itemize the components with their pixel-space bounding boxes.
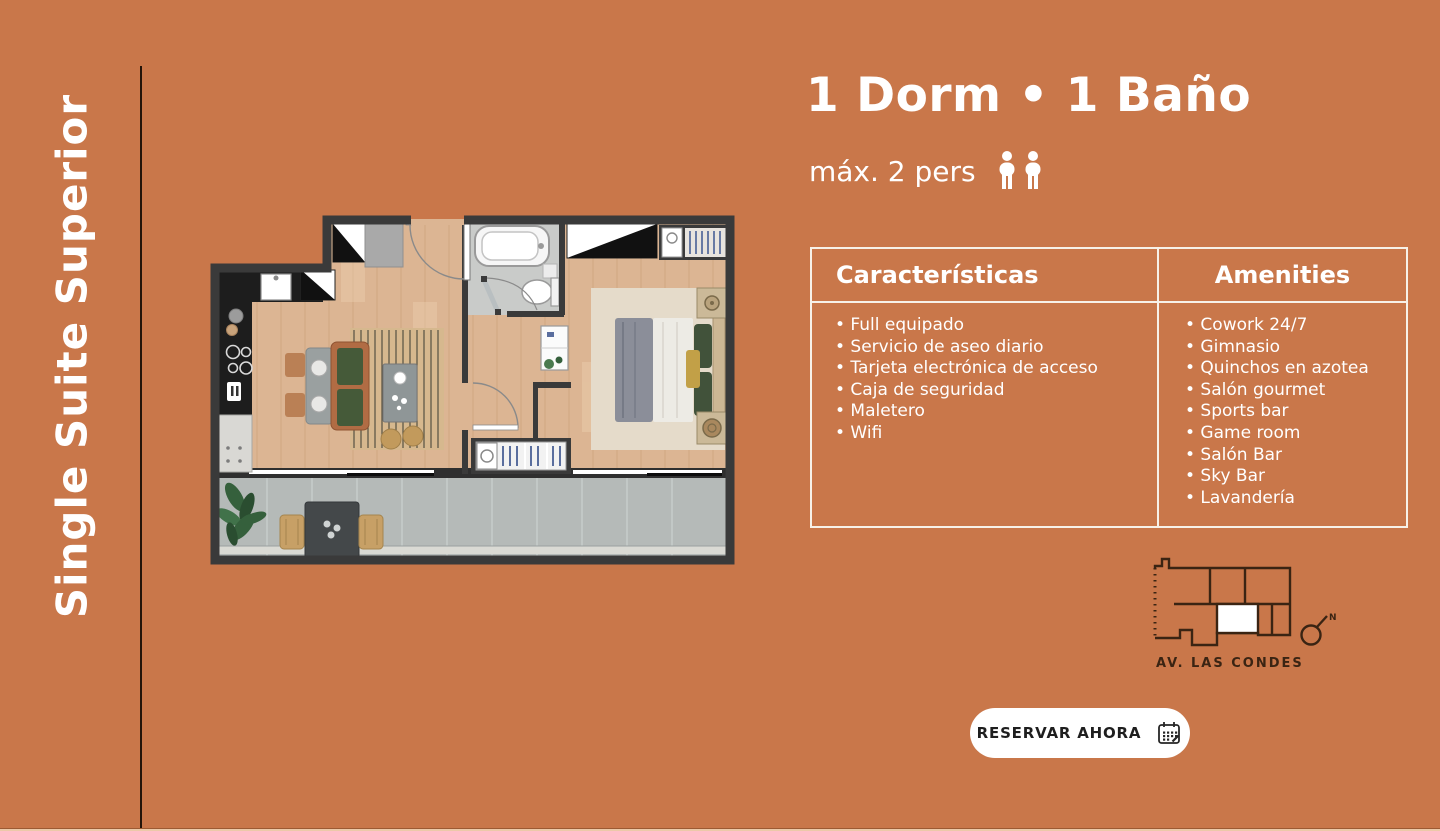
caracteristicas-column: Características • Full equipado• Servici… (812, 249, 1159, 526)
amenity-item: • Sky Bar (1185, 466, 1398, 488)
caracteristica-item: • Servicio de aseo diario (835, 337, 1149, 359)
highlighted-unit (1217, 604, 1258, 633)
amenity-item: • Gimnasio (1185, 337, 1398, 359)
balcony-chair (359, 515, 383, 549)
kitchen-cabinet (218, 415, 252, 472)
pouf (403, 426, 423, 446)
balcony-table (305, 502, 359, 560)
amenity-item: • Cowork 24/7 (1185, 315, 1398, 337)
capacity-row: máx. 2 pers (809, 150, 1050, 192)
amenity-item: • Salón gourmet (1185, 380, 1398, 402)
vertical-divider-line (140, 66, 142, 828)
amenities-column: Amenities • Cowork 24/7• Gimnasio• Quinc… (1159, 249, 1406, 526)
coffee-table (383, 364, 417, 422)
pouf (381, 429, 401, 449)
floor-plan-image (207, 212, 738, 568)
capacity-label: máx. 2 pers (809, 155, 976, 188)
caracteristica-item: • Maletero (835, 401, 1149, 423)
nightstand (697, 412, 727, 444)
amenity-item: • Lavandería (1185, 488, 1398, 510)
plan-name-vertical: Single Suite Superior (48, 94, 97, 618)
hall-dresser (541, 326, 568, 370)
amenity-item: • Salón Bar (1185, 445, 1398, 467)
caracteristica-item: • Wifi (835, 423, 1149, 445)
features-table: Características • Full equipado• Servici… (810, 247, 1408, 528)
unit-title: 1 Dorm • 1 Baño (806, 68, 1251, 123)
sofa (331, 342, 369, 430)
caracteristicas-list: • Full equipado• Servicio de aseo diario… (812, 303, 1157, 445)
two-persons-icon (996, 150, 1050, 192)
north-label: N (1329, 613, 1337, 623)
reserve-button[interactable]: RESERVAR AHORA (970, 708, 1190, 758)
reserve-button-label: RESERVAR AHORA (977, 724, 1142, 742)
north-arrow-icon (1302, 616, 1328, 645)
amenity-item: • Sports bar (1185, 401, 1398, 423)
balcony-chair (280, 515, 304, 549)
column-header-amenities: Amenities (1159, 249, 1406, 303)
wardrobe (471, 438, 571, 474)
bedroom-closet (659, 225, 730, 260)
caracteristica-item: • Tarjeta electrónica de acceso (835, 358, 1149, 380)
amenity-item: • Game room (1185, 423, 1398, 445)
amenity-item: • Quinchos en azotea (1185, 358, 1398, 380)
street-label: AV. LAS CONDES (1156, 656, 1304, 671)
location-key-plan: N AV. LAS CONDES (1150, 552, 1360, 684)
caracteristica-item: • Full equipado (835, 315, 1149, 337)
page-background: Single Suite Superior 1 Dorm • 1 Baño má… (0, 0, 1440, 831)
nightstand (697, 288, 727, 318)
bathroom (468, 220, 564, 315)
calendar-icon (1155, 719, 1183, 747)
toilet (522, 280, 552, 304)
amenities-list: • Cowork 24/7• Gimnasio• Quinchos en azo… (1159, 303, 1406, 509)
towels (543, 264, 557, 278)
column-header-caracteristicas: Características (812, 249, 1157, 303)
caracteristica-item: • Caja de seguridad (835, 380, 1149, 402)
